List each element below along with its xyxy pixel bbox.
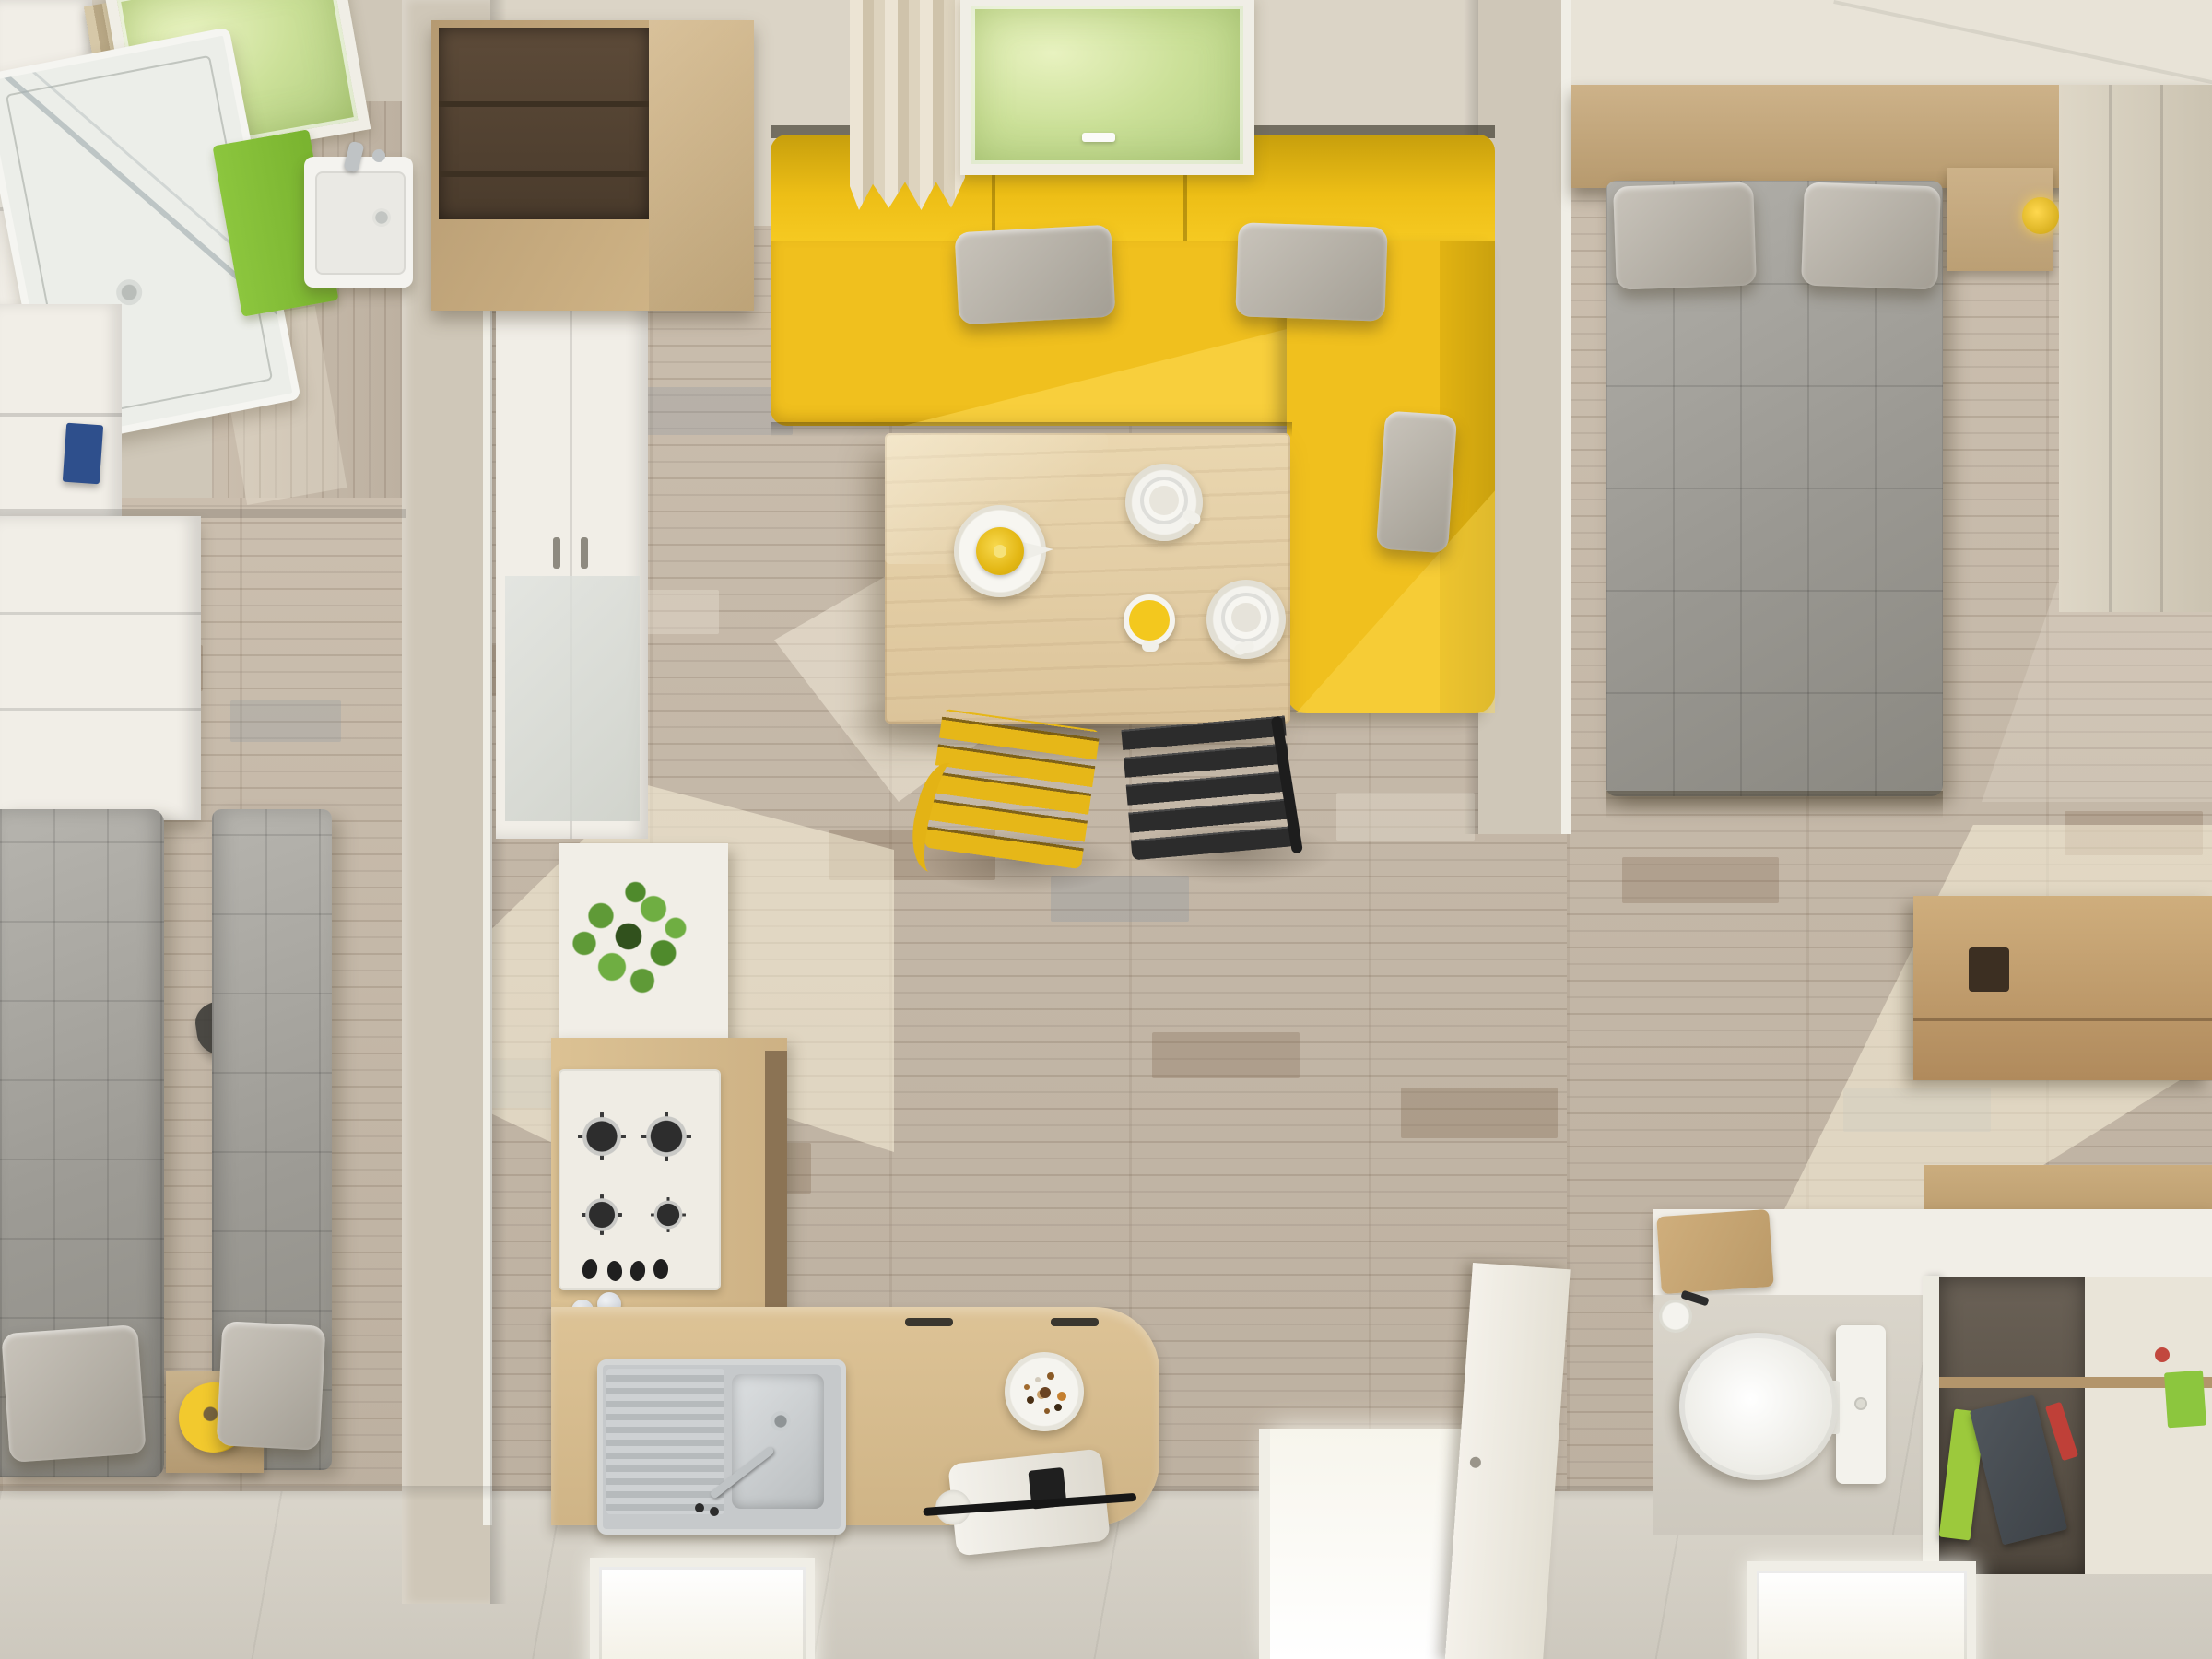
plank-patch: [230, 700, 341, 742]
plank-patch: [1336, 793, 1475, 841]
cabinet-open-shelf: [439, 28, 649, 219]
counter-drawer-handle: [905, 1318, 953, 1326]
red-dot-right: [2155, 1347, 2170, 1362]
storage-chest: [1913, 896, 2212, 1080]
apartment-render: [0, 0, 2212, 1659]
hob-knob: [606, 1260, 623, 1282]
teapot: [954, 505, 1046, 597]
coffee-machine: [947, 1449, 1111, 1557]
toilet-bowl: [1679, 1333, 1838, 1480]
counter-drawer-handle: [1051, 1318, 1099, 1326]
faucet-knob: [372, 149, 385, 162]
snack-plate: [1005, 1352, 1084, 1431]
faucet-handle-dot: [710, 1507, 719, 1516]
cutting-board: [1656, 1209, 1774, 1294]
wardrobe-seam: [0, 708, 201, 711]
partition-wall-left-edge: [483, 272, 492, 1525]
living-skylight: [960, 0, 1254, 175]
dining-table: [885, 433, 1290, 724]
washbasin-drain: [372, 208, 391, 227]
burner: [641, 1112, 691, 1161]
washbasin: [304, 157, 413, 288]
potted-plant: [559, 867, 698, 1006]
curtain: [850, 0, 965, 217]
cabinet-handle: [581, 537, 588, 569]
wardrobe-seam: [2160, 85, 2163, 612]
bed-pillow: [1613, 182, 1757, 289]
washbasin-bowl: [315, 171, 406, 275]
bed-pillow: [1801, 182, 1941, 289]
cabinet-handle: [553, 537, 560, 569]
sofa-cushion: [1376, 410, 1457, 553]
kitchen-tall-cabinet: [496, 272, 648, 839]
entry-frame-left: [1259, 1429, 1270, 1659]
stove-side-panel: [765, 1051, 787, 1327]
cabinet-glass-front: [505, 576, 640, 821]
ceiling-right-of-skylight: [1226, 0, 1493, 138]
sink-basin: [732, 1374, 824, 1509]
black-slatted-chair: [1121, 711, 1296, 861]
hob-knob: [653, 1259, 668, 1279]
cup-with-saucer: [1125, 464, 1203, 541]
kitchen-sink: [597, 1359, 846, 1535]
sink-drainboard: [606, 1369, 724, 1514]
door-handle-dot: [1469, 1456, 1481, 1468]
shelf-board-line: [439, 171, 649, 177]
plank-patch: [1051, 876, 1189, 922]
bed-pillow: [1, 1324, 146, 1463]
cup-with-saucer: [1206, 580, 1286, 659]
yellow-mug: [1124, 594, 1175, 646]
teapot-knob: [994, 545, 1006, 558]
burner: [582, 1194, 622, 1235]
chest-slot: [1969, 947, 2009, 992]
sofa-cushion: [954, 225, 1115, 325]
table-grain: [885, 433, 1290, 724]
right-wardrobe: [2059, 85, 2212, 612]
cup-foam: [1149, 486, 1179, 515]
plank-patch: [1622, 857, 1779, 903]
flush-button: [1854, 1397, 1867, 1410]
entry-light: [1270, 1429, 1467, 1659]
cabinet-top-sheen: [649, 20, 754, 311]
faucet-handle-dot: [695, 1503, 704, 1512]
snacks: [1040, 1387, 1051, 1398]
skylight-handle: [1082, 133, 1115, 142]
mug-handle: [1142, 641, 1159, 652]
mug-tea: [1129, 600, 1170, 641]
plank-patch: [1401, 1088, 1558, 1138]
hob-knob: [581, 1258, 599, 1280]
green-box-right: [2164, 1371, 2206, 1429]
wardrobe-seam: [0, 612, 201, 615]
bedside-lamp: [2022, 197, 2059, 234]
blue-storage-box: [63, 423, 103, 485]
floor-window-toilet: [1747, 1561, 1976, 1659]
hob-knob: [629, 1260, 647, 1282]
ceiling-right-bedroom: [1491, 0, 2212, 87]
sink-drain: [771, 1411, 791, 1431]
tall-wood-cabinet: [431, 20, 754, 311]
burner: [651, 1197, 686, 1232]
plank-patch: [1843, 1088, 1991, 1132]
sofa-cushion: [1235, 222, 1387, 322]
yellow-slatted-chair: [924, 709, 1100, 869]
wardrobe-seam: [2109, 85, 2112, 612]
gas-hob: [559, 1069, 721, 1290]
shelf-board-line: [439, 101, 649, 107]
plank-patch: [1152, 1032, 1300, 1078]
toilet-paper-roll: [1659, 1300, 1692, 1333]
left-wardrobe: [0, 516, 201, 820]
bed-pillow: [217, 1321, 326, 1451]
burner: [578, 1112, 626, 1160]
shelf-line: [0, 413, 122, 417]
floor-window-kitchen: [590, 1558, 815, 1659]
chest-lid-seam: [1913, 1018, 2212, 1021]
toilet-cistern: [1836, 1325, 1886, 1484]
cup-foam: [1231, 603, 1261, 632]
bathroom-shelf-unit: [0, 304, 122, 524]
partition-wall-right-edge: [1561, 0, 1571, 834]
plank-patch: [2065, 811, 2203, 855]
